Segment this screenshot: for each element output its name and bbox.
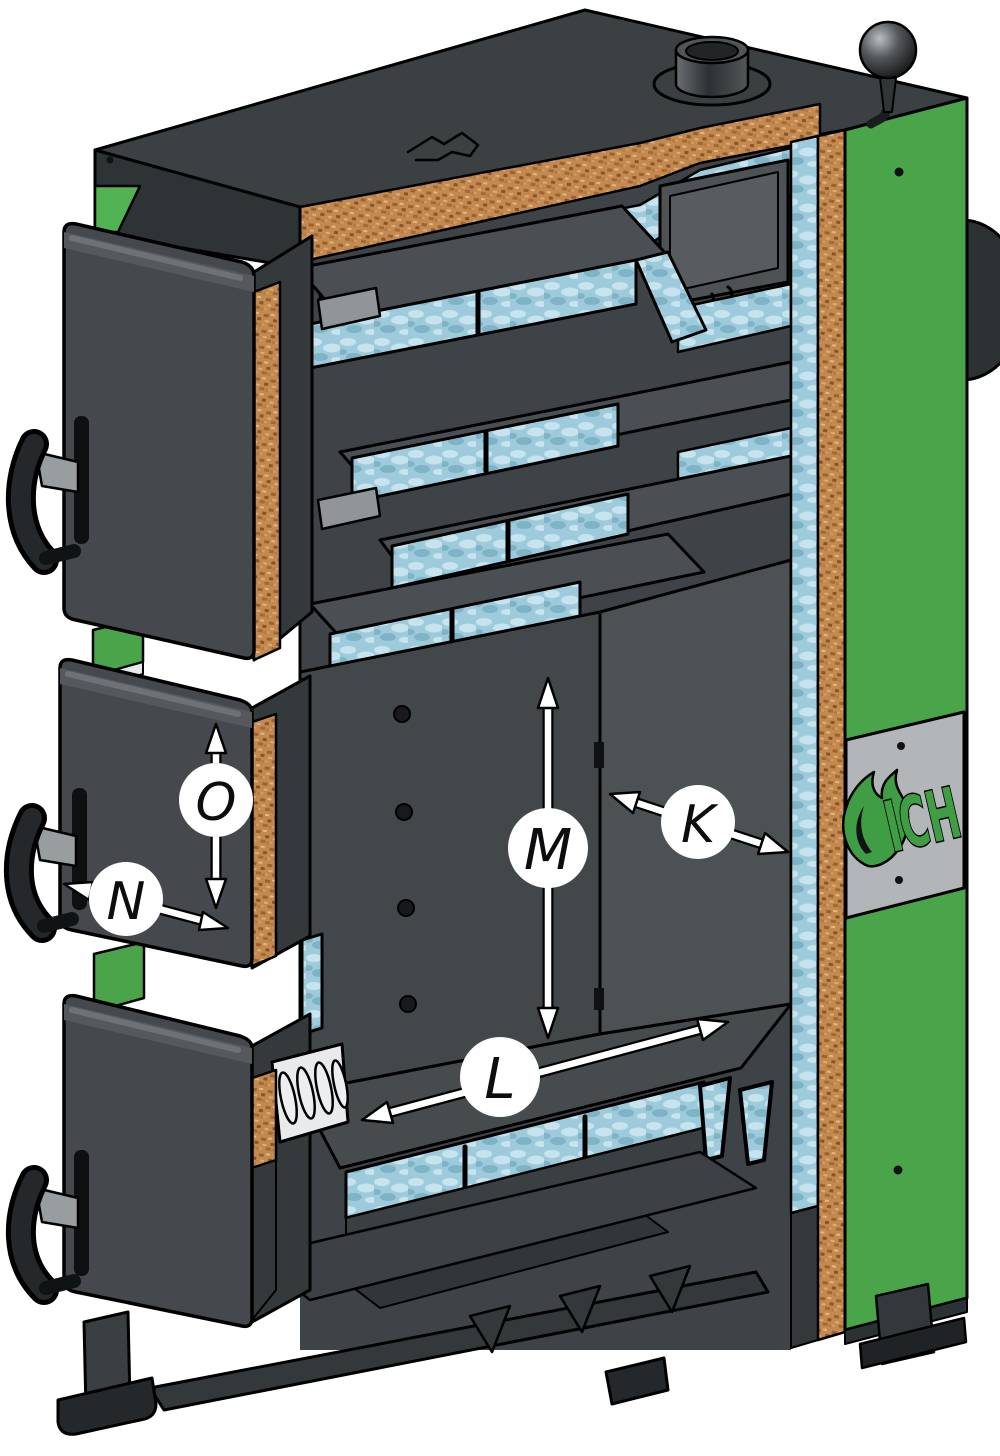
plate-screw-top [897,742,905,750]
door-middle [19,660,310,968]
door-middle-handle-foot [44,919,72,926]
insulation-right-strip [818,130,845,1340]
door-middle-insulation [252,714,276,966]
door-top-insulation [254,282,280,660]
diagram-canvas: ICH [0,0,1000,1456]
knob-ball [860,22,916,78]
side-panel-green [845,98,967,1330]
label-l: L [484,1047,515,1112]
right-lower-dark [791,1206,818,1348]
label-o: O [196,773,237,833]
door-top-slab [64,224,254,659]
panel-screw-top [895,168,904,177]
door-bottom-handle-foot [46,1281,74,1288]
wall-tab-upper [594,742,604,768]
top-rivet [107,157,114,164]
door-top [21,224,312,660]
label-m: M [524,818,572,883]
panel-screw-bottom [894,1166,903,1175]
door-bottom [21,996,351,1327]
door-bottom-insulation [252,1070,276,1168]
label-k: K [681,795,719,855]
door-top-handle-foot [46,551,74,558]
water-jacket-right-strip [791,136,818,1213]
brand-logo: ICH [843,712,968,918]
label-n: N [107,872,146,932]
door-bottom-frame [252,1160,276,1320]
plate-screw-bottom [895,876,903,884]
boiler-cutaway-diagram: ICH [0,0,1000,1456]
wall-tab-lower [594,988,604,1010]
